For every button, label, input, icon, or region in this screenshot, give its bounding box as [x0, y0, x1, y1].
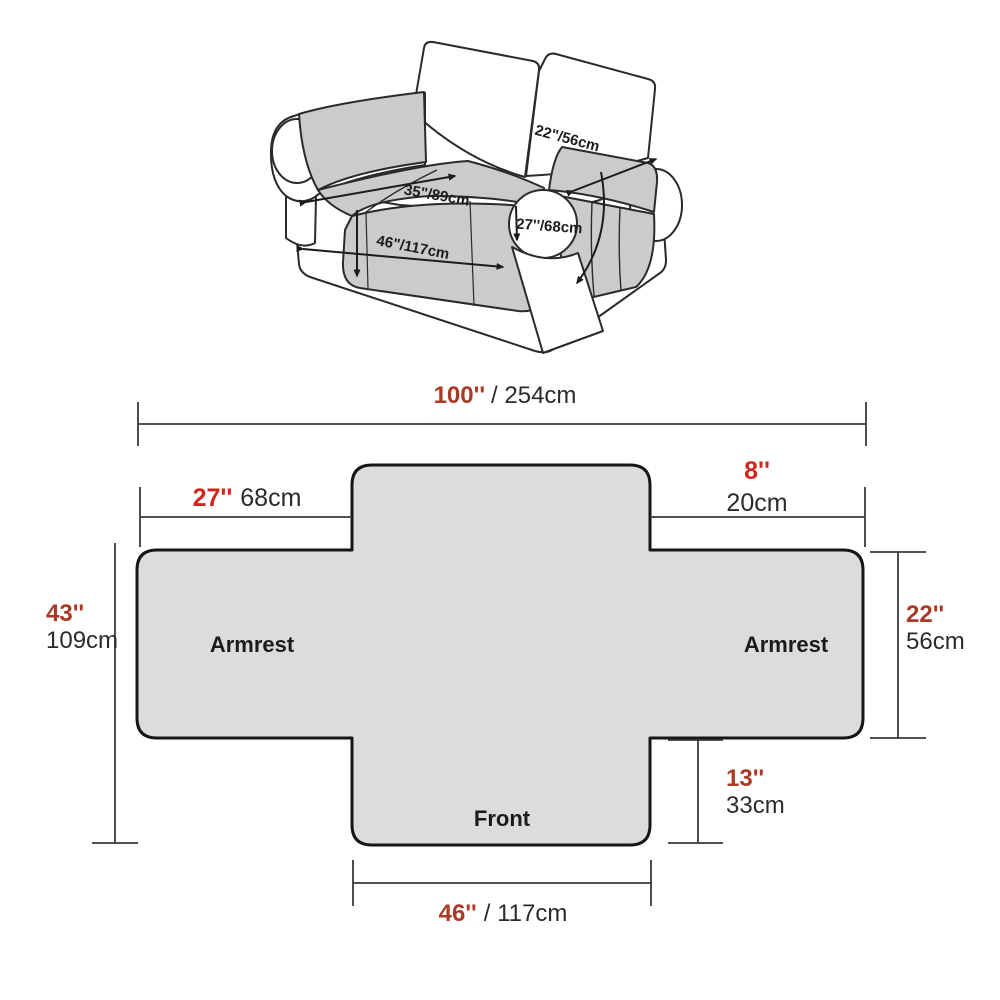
sofa-cover-size-diagram: 22"/56cm 35"/89cm 46"/117cm 27''/68cm Ar…: [0, 0, 1000, 1000]
dim-front-drop: 13'' 33cm: [668, 740, 785, 843]
dim-back-left: 27''68cm: [140, 484, 352, 547]
dim-side-left: 43'' 109cm: [46, 543, 138, 843]
svg-text:46''/ 117cm: 46''/ 117cm: [439, 900, 568, 927]
svg-text:100''/ 254cm: 100''/ 254cm: [434, 382, 577, 409]
dim-back-right-cm: 20cm: [726, 489, 787, 517]
cover-flat-diagram: Armrest Armrest Front 100''/ 254cm 27''6…: [46, 382, 965, 927]
armrest-right-label: Armrest: [744, 632, 829, 657]
dim-front-width: 46''/ 117cm: [353, 860, 651, 927]
sofa-illustration: 22"/56cm 35"/89cm 46"/117cm 27''/68cm: [271, 42, 682, 353]
armrest-left-label: Armrest: [210, 632, 295, 657]
dim-side-left-cm: 109cm: [46, 627, 118, 654]
dim-back-right: 8'' 20cm: [650, 457, 865, 547]
dim-side-right: 22'' 56cm: [870, 552, 965, 738]
dim-side-right-inches: 22'': [906, 601, 944, 628]
dim-front-drop-inches: 13'': [726, 765, 764, 792]
dim-back-left-cm: 68cm: [240, 484, 301, 512]
dim-total-width: 100''/ 254cm: [138, 382, 866, 446]
dim-side-right-cm: 56cm: [906, 628, 965, 655]
svg-text:27''68cm: 27''68cm: [193, 484, 302, 512]
diagram-canvas: 22"/56cm 35"/89cm 46"/117cm 27''/68cm Ar…: [0, 0, 1000, 1000]
front-label: Front: [474, 806, 531, 831]
dim-side-left-inches: 43'': [46, 600, 84, 627]
dim-front-width-inches: 46'': [439, 900, 477, 927]
dim-total-inches: 100'': [434, 382, 485, 409]
dim-back-right-inches: 8'': [744, 457, 770, 485]
dim-front-drop-cm: 33cm: [726, 792, 785, 819]
dim-total-cm: / 254cm: [491, 382, 576, 409]
dim-front-width-cm: / 117cm: [484, 900, 568, 927]
sofa-back-cushion-left: [413, 42, 539, 177]
dim-back-left-inches: 27'': [193, 484, 233, 512]
